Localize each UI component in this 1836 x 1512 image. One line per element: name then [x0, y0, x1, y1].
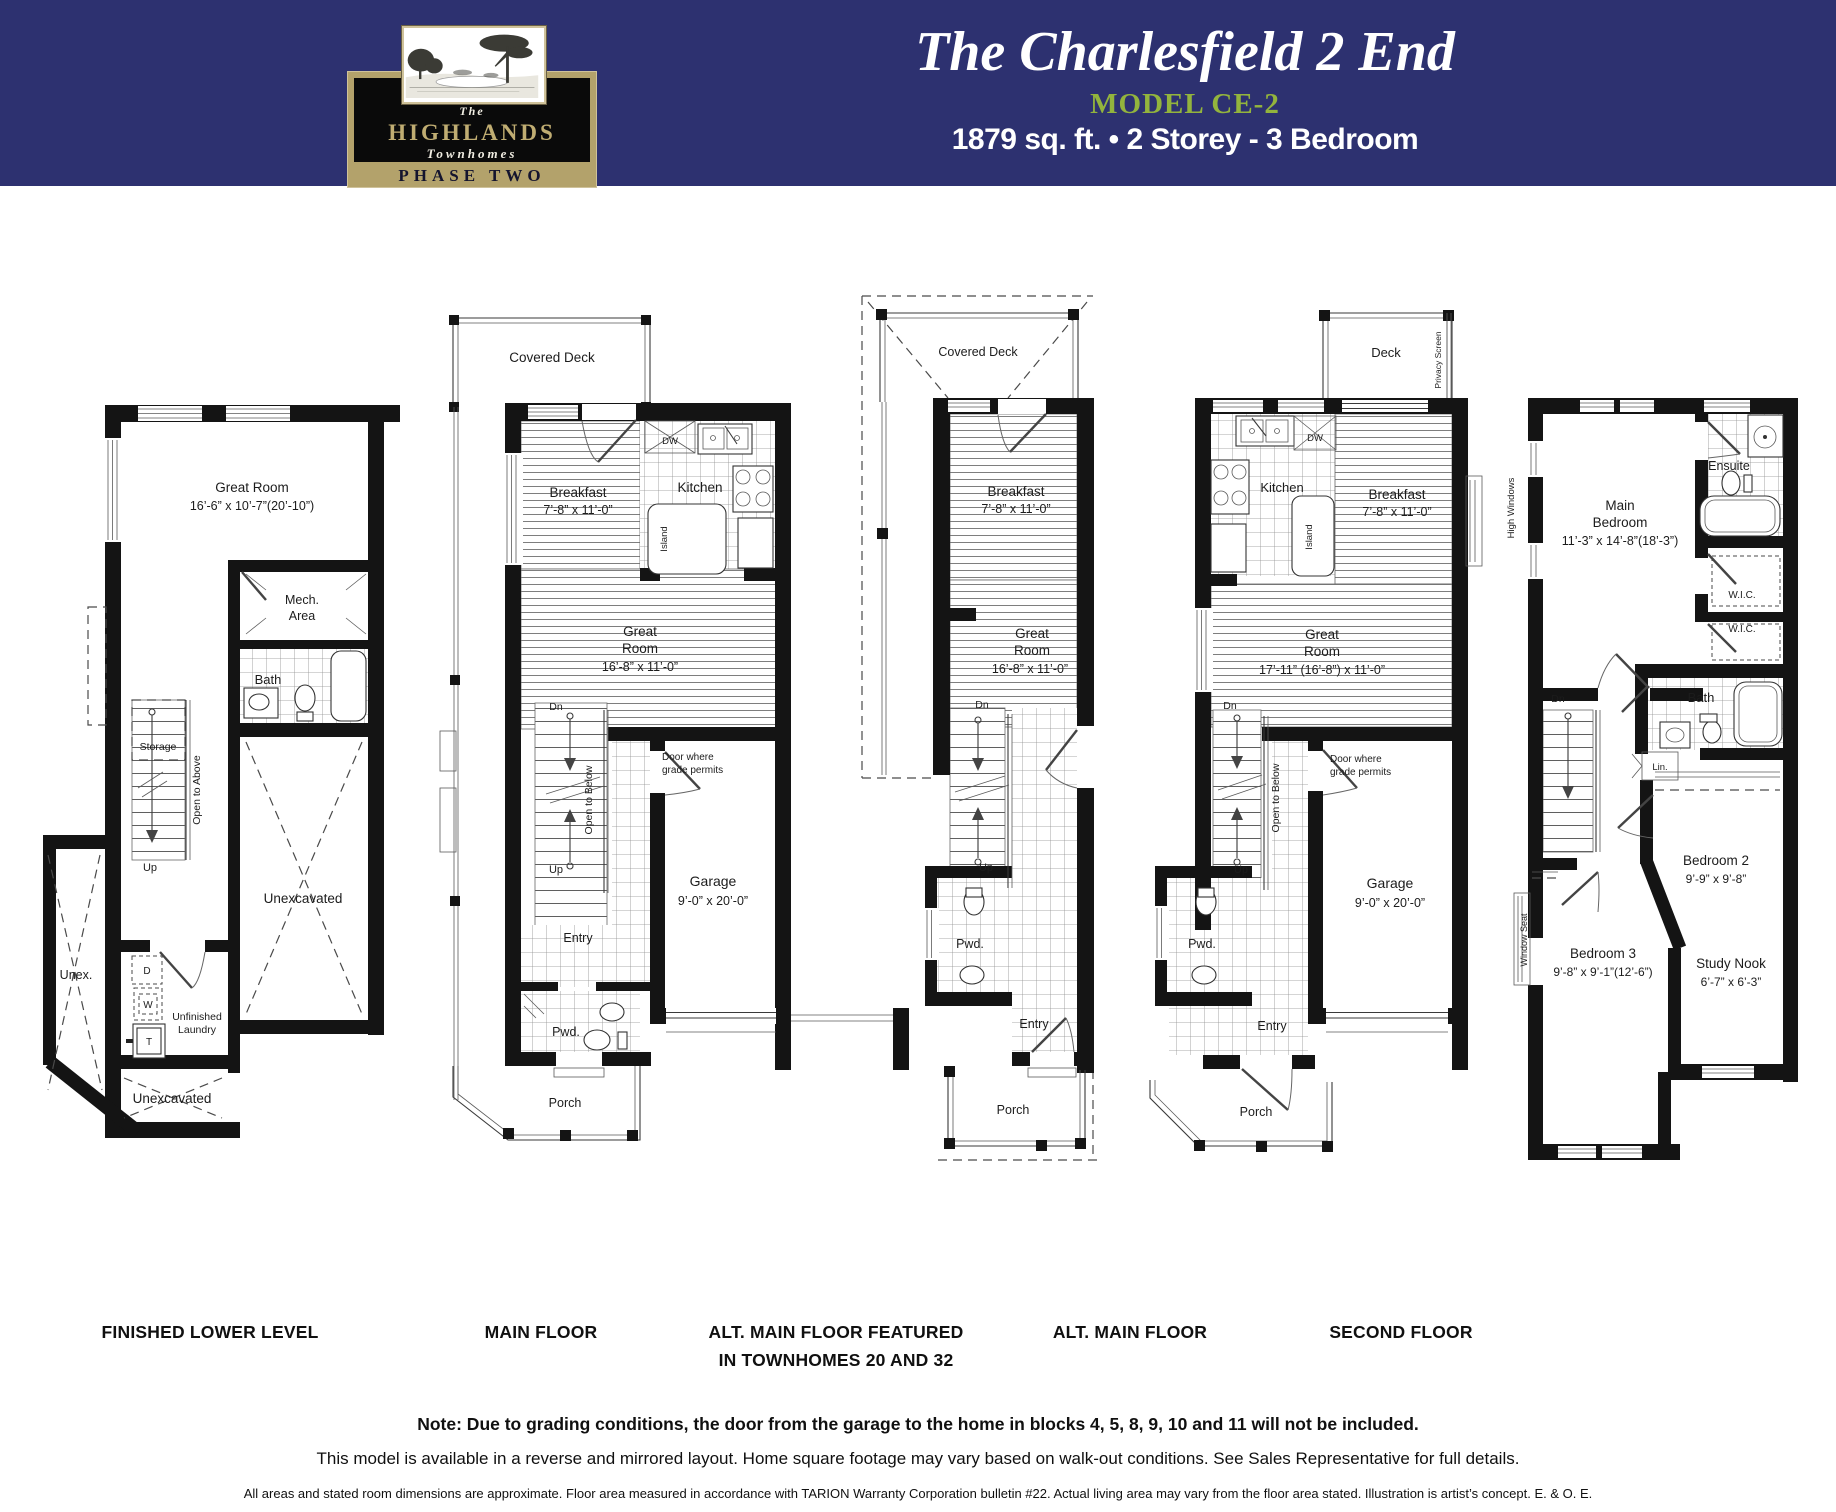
plan-alt-main-floor-20-32: Covered Deck Breakfast 7’-8” x 11’-0” Gr…	[848, 290, 1150, 1175]
label-main-1: Main	[1605, 498, 1634, 513]
label-ensuite: Ensuite	[1708, 459, 1750, 473]
label-great-dim: 16’-8” x 11’-0”	[602, 660, 678, 674]
label-door-grade-1: Door where	[1330, 754, 1382, 765]
label-up: Up	[979, 862, 993, 874]
label-high-windows: High Windows	[1506, 477, 1517, 538]
label-great-dim: 17’-11” (16’-8”) x 11’-0”	[1259, 663, 1385, 677]
label-laundry-1: Unfinished	[172, 1011, 222, 1023]
label-main-dim: 11’-3” x 14’-8”(18’-3”)	[1562, 534, 1678, 548]
highlands-logo: The HIGHLANDS Townhomes PHASE TWO	[347, 26, 597, 188]
label-breakfast-dim: 7’-8” x 11’-0”	[981, 502, 1050, 516]
windows	[104, 406, 290, 542]
model-code: MODEL CE-2	[835, 88, 1535, 121]
plan-second-floor: High Windows Ensuite Main Bedroom 11’-3”…	[1495, 390, 1836, 1190]
label-bed3: Bedroom 3	[1570, 946, 1636, 961]
note-mirrored-layout: This model is available in a reverse and…	[0, 1449, 1836, 1469]
label-washer: W	[143, 1000, 153, 1011]
label-door-grade-1: Door where	[662, 752, 714, 763]
caption-alt-line-2: IN TOWNHOMES 20 AND 32	[661, 1346, 1011, 1374]
label-garage-dim: 9’-0” x 20’-0”	[678, 894, 748, 908]
label-door-grade-2: grade permits	[1330, 767, 1391, 778]
label-porch: Porch	[549, 1096, 582, 1110]
label-great-1: Great	[1015, 626, 1049, 641]
logo-the: The	[354, 104, 590, 119]
label-entry: Entry	[563, 931, 593, 945]
label-entry: Entry	[1019, 1017, 1049, 1031]
label-breakfast-dim: 7’-8” x 11’-0”	[1362, 505, 1431, 519]
label-great-room-dim: 16’-6” x 10’-7”(20’-10”)	[190, 499, 314, 513]
caption-second-floor: SECOND FLOOR	[1251, 1318, 1551, 1346]
label-mech-1: Mech.	[285, 593, 319, 607]
label-bath: Bath	[1688, 690, 1715, 705]
label-dn: Dn	[975, 699, 989, 711]
model-specs: 1879 sq. ft. • 2 Storey - 3 Bedroom	[835, 123, 1535, 157]
label-lin: Lin.	[1652, 762, 1667, 773]
caption-alt-main-floor: ALT. MAIN FLOOR	[980, 1318, 1280, 1346]
porch-rails	[453, 1066, 640, 1141]
label-dn: Dn	[1551, 693, 1565, 705]
label-bed2-dim: 9’-9” x 9’-8”	[1686, 872, 1747, 886]
label-bed2: Bedroom 2	[1683, 853, 1749, 868]
label-breakfast: Breakfast	[987, 484, 1044, 499]
label-breakfast: Breakfast	[549, 485, 606, 500]
label-wic-a: W.I.C.	[1728, 590, 1755, 601]
logo-townhomes: Townhomes	[354, 146, 590, 162]
label-open-to-below: Open to Below	[583, 765, 595, 834]
caption-finished-lower-level: FINISHED LOWER LEVEL	[60, 1318, 360, 1346]
label-covered-deck: Covered Deck	[938, 345, 1018, 359]
label-storage: Storage	[140, 741, 177, 753]
logo-landscape-image	[402, 26, 546, 104]
label-privacy-screen: Privacy Screen	[1433, 331, 1443, 388]
logo-phase: PHASE TWO	[347, 166, 597, 186]
label-unex: Unex.	[60, 968, 93, 982]
label-covered-deck: Covered Deck	[509, 350, 595, 365]
title-block: The Charlesfield 2 End MODEL CE-2 1879 s…	[835, 0, 1535, 157]
label-bath: Bath	[255, 672, 282, 687]
plan-alt-main-floor: Deck Privacy Screen Kitchen DW Island Br…	[1145, 305, 1490, 1175]
label-dn: Dn	[1223, 700, 1237, 712]
label-garage: Garage	[690, 873, 737, 889]
landscape-etching-icon	[404, 28, 540, 98]
label-porch: Porch	[1240, 1105, 1273, 1119]
label-up: Up	[143, 862, 157, 874]
caption-main-floor: MAIN FLOOR	[391, 1318, 691, 1346]
label-study: Study Nook	[1696, 956, 1766, 971]
label-dw: DW	[662, 436, 678, 447]
label-island: Island	[659, 526, 670, 551]
label-open-to-below: Open to Below	[1270, 763, 1282, 832]
label-deck: Deck	[1371, 345, 1401, 360]
label-dw: DW	[1307, 433, 1323, 444]
label-wic-b: W.I.C.	[1728, 624, 1755, 635]
label-bed3-dim: 9’-8” x 9’-1”(12’-6”)	[1553, 965, 1652, 979]
label-great-2: Room	[622, 641, 658, 656]
label-up: Up	[549, 864, 563, 876]
label-great-dim: 16’-8” x 11’-0”	[992, 662, 1068, 676]
label-entry: Entry	[1257, 1019, 1287, 1033]
label-unexcavated-bottom: Unexcavated	[133, 1091, 212, 1106]
logo-name: HIGHLANDS	[354, 120, 590, 146]
caption-alt-line-1: ALT. MAIN FLOOR FEATURED	[661, 1318, 1011, 1346]
label-kitchen: Kitchen	[677, 480, 722, 495]
label-dn: Dn	[549, 701, 563, 713]
label-door-grade-2: grade permits	[662, 765, 723, 776]
caption-alt-main-floor-20-32: ALT. MAIN FLOOR FEATURED IN TOWNHOMES 20…	[661, 1318, 1011, 1374]
label-main-2: Bedroom	[1593, 515, 1648, 530]
label-great-2: Room	[1304, 644, 1340, 659]
plan-finished-lower-level: Great Room 16’-6” x 10’-7”(20’-10”) Mech…	[45, 395, 405, 1155]
label-porch: Porch	[997, 1103, 1030, 1117]
floorplan-brochure-page: The HIGHLANDS Townhomes PHASE TWO The Ch…	[0, 0, 1836, 1512]
label-pwd: Pwd.	[1188, 937, 1216, 951]
plan-main-floor: Covered Deck Breakfast 7’-8” x 11’-0” Ki…	[435, 310, 815, 1165]
label-great-room: Great Room	[215, 480, 289, 495]
label-garage-dim: 9’-0” x 20’-0”	[1355, 896, 1425, 910]
label-island: Island	[1304, 524, 1315, 549]
label-unexcavated-side: Unexcavated	[264, 891, 343, 906]
header-band: The HIGHLANDS Townhomes PHASE TWO The Ch…	[0, 0, 1836, 186]
walls	[43, 405, 400, 1138]
label-study-dim: 6’-7” x 6’-3”	[1701, 975, 1762, 989]
label-open-to-above: Open to Above	[191, 755, 203, 825]
label-breakfast: Breakfast	[1368, 487, 1425, 502]
note-disclaimer: All areas and stated room dimensions are…	[0, 1486, 1836, 1501]
note-grading: Note: Due to grading conditions, the doo…	[0, 1414, 1836, 1435]
label-kitchen: Kitchen	[1260, 480, 1303, 495]
label-tank: T	[146, 1037, 152, 1048]
label-mech-2: Area	[289, 609, 315, 623]
label-great-1: Great	[1305, 627, 1339, 642]
label-pwd: Pwd.	[552, 1025, 580, 1039]
label-breakfast-dim: 7’-8” x 11’-0”	[543, 503, 612, 517]
label-great-2: Room	[1014, 643, 1050, 658]
label-pwd: Pwd.	[956, 937, 984, 951]
page-title: The Charlesfield 2 End	[835, 20, 1535, 84]
label-garage: Garage	[1367, 875, 1414, 891]
label-up: Up	[1234, 864, 1248, 876]
label-window-seat: Window Seat	[1519, 913, 1529, 967]
label-great-1: Great	[623, 624, 657, 639]
room-labels: Great Room 16’-6” x 10’-7”(20’-10”) Mech…	[60, 480, 343, 1106]
label-laundry-2: Laundry	[178, 1024, 217, 1036]
label-dryer: D	[143, 966, 150, 977]
